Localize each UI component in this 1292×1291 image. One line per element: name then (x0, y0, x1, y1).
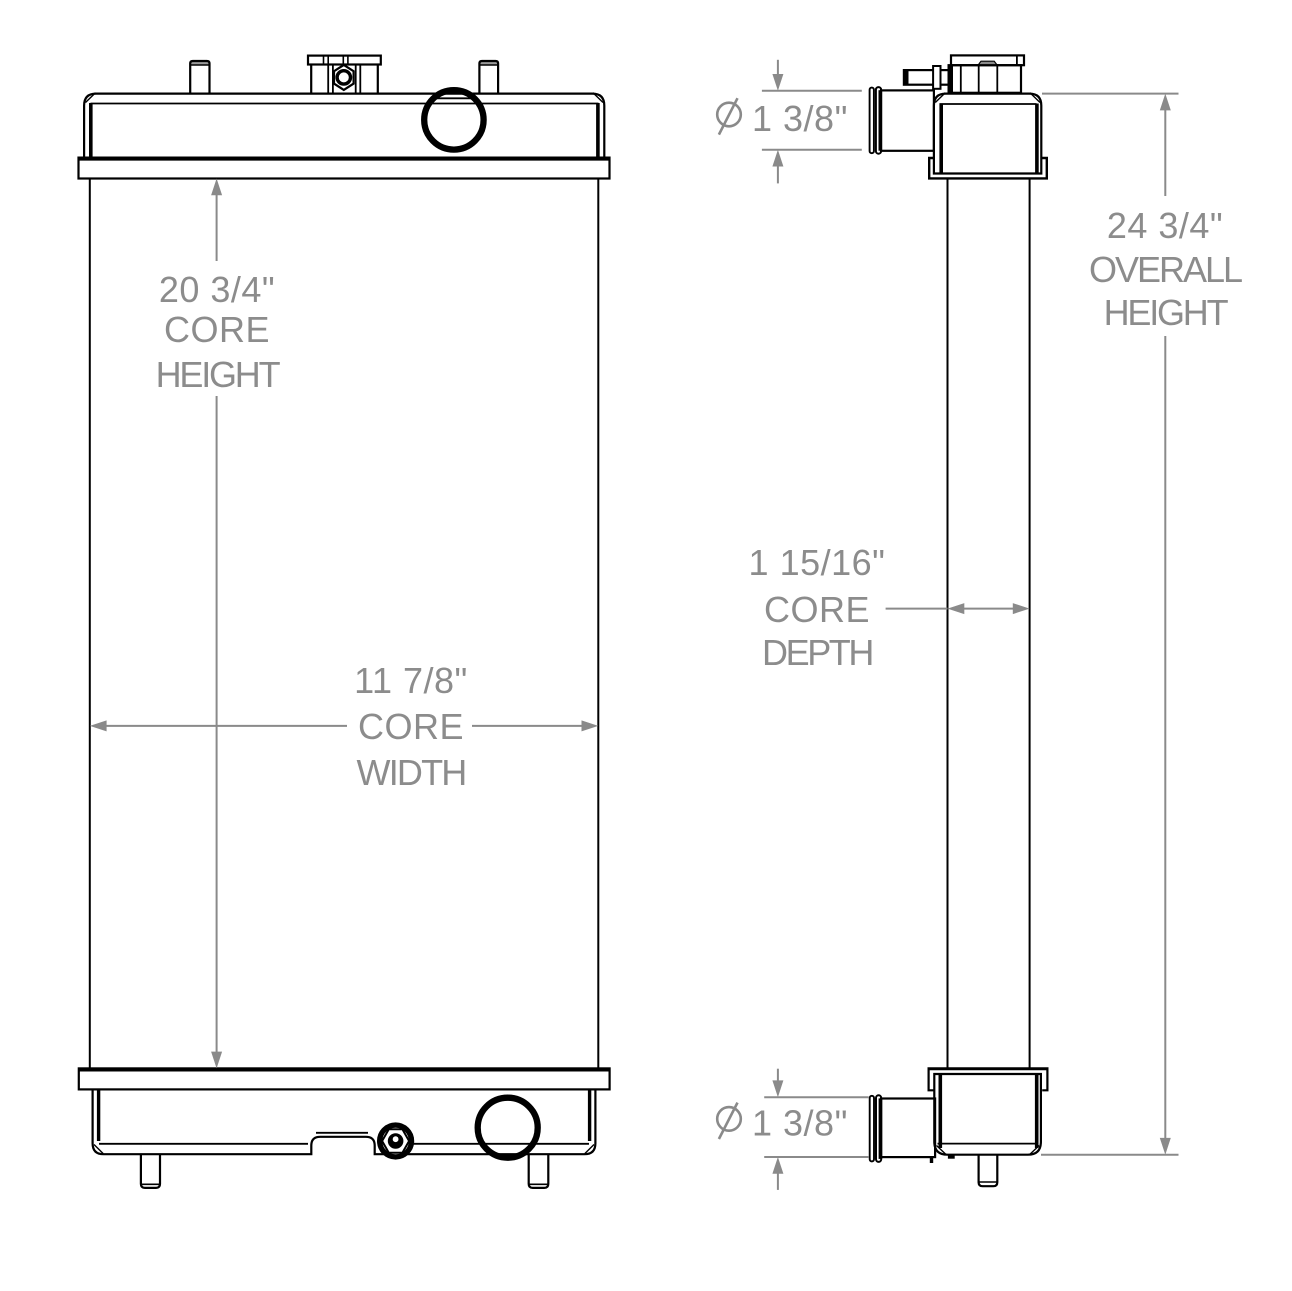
svg-text:CORE: CORE (164, 309, 270, 350)
svg-text:HEIGHT: HEIGHT (156, 354, 281, 395)
svg-text:24 3/4": 24 3/4" (1107, 205, 1223, 246)
svg-text:1 3/8": 1 3/8" (752, 1102, 848, 1143)
svg-text:CORE: CORE (358, 706, 464, 747)
svg-text:1 15/16": 1 15/16" (749, 542, 886, 583)
svg-text:CORE: CORE (764, 589, 870, 630)
svg-text:DEPTH: DEPTH (762, 632, 872, 673)
svg-text:HEIGHT: HEIGHT (1104, 292, 1229, 333)
svg-text:20 3/4": 20 3/4" (159, 269, 275, 310)
svg-text:WIDTH: WIDTH (357, 752, 466, 793)
svg-text:1 3/8": 1 3/8" (752, 98, 848, 139)
svg-text:OVERALL: OVERALL (1089, 249, 1242, 290)
svg-text:11 7/8": 11 7/8" (354, 660, 468, 701)
